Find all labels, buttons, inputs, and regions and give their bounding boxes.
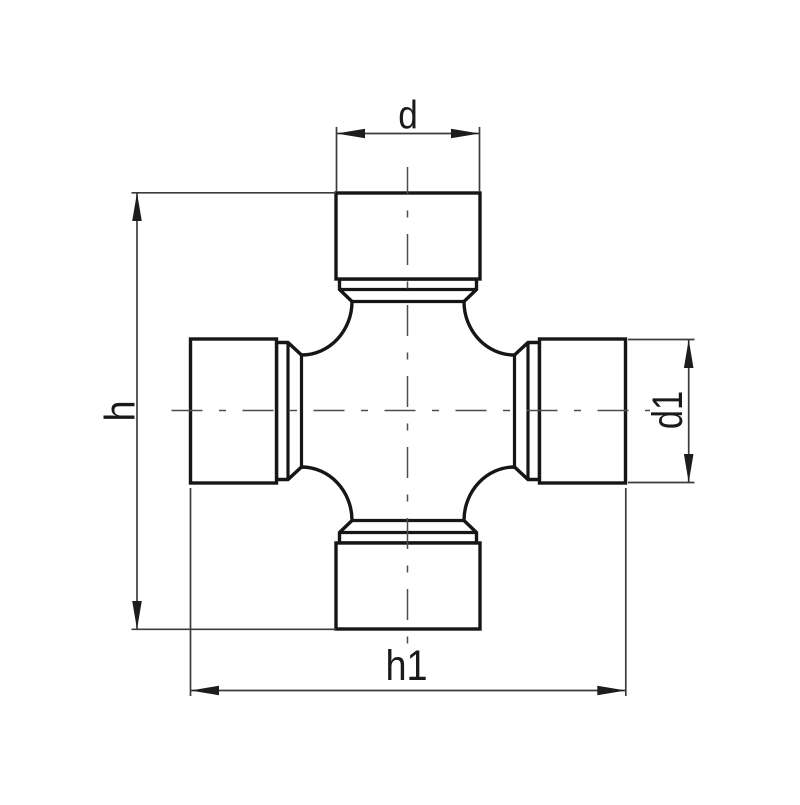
svg-text:d1: d1 [644, 391, 691, 429]
svg-text:d: d [398, 92, 418, 137]
svg-text:h: h [95, 400, 144, 421]
svg-text:h1: h1 [385, 641, 427, 690]
